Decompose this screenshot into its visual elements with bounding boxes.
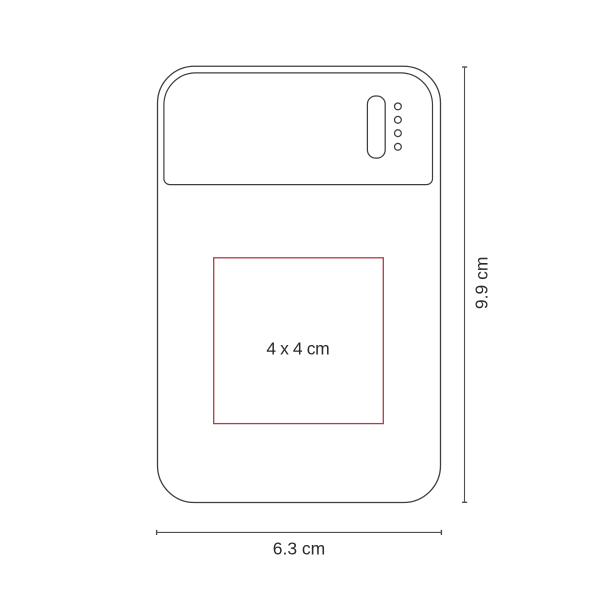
- svg-text:9.9 cm: 9.9 cm: [471, 257, 491, 310]
- svg-text:4 x 4 cm: 4 x 4 cm: [266, 339, 329, 359]
- svg-text:6.3 cm: 6.3 cm: [273, 538, 326, 558]
